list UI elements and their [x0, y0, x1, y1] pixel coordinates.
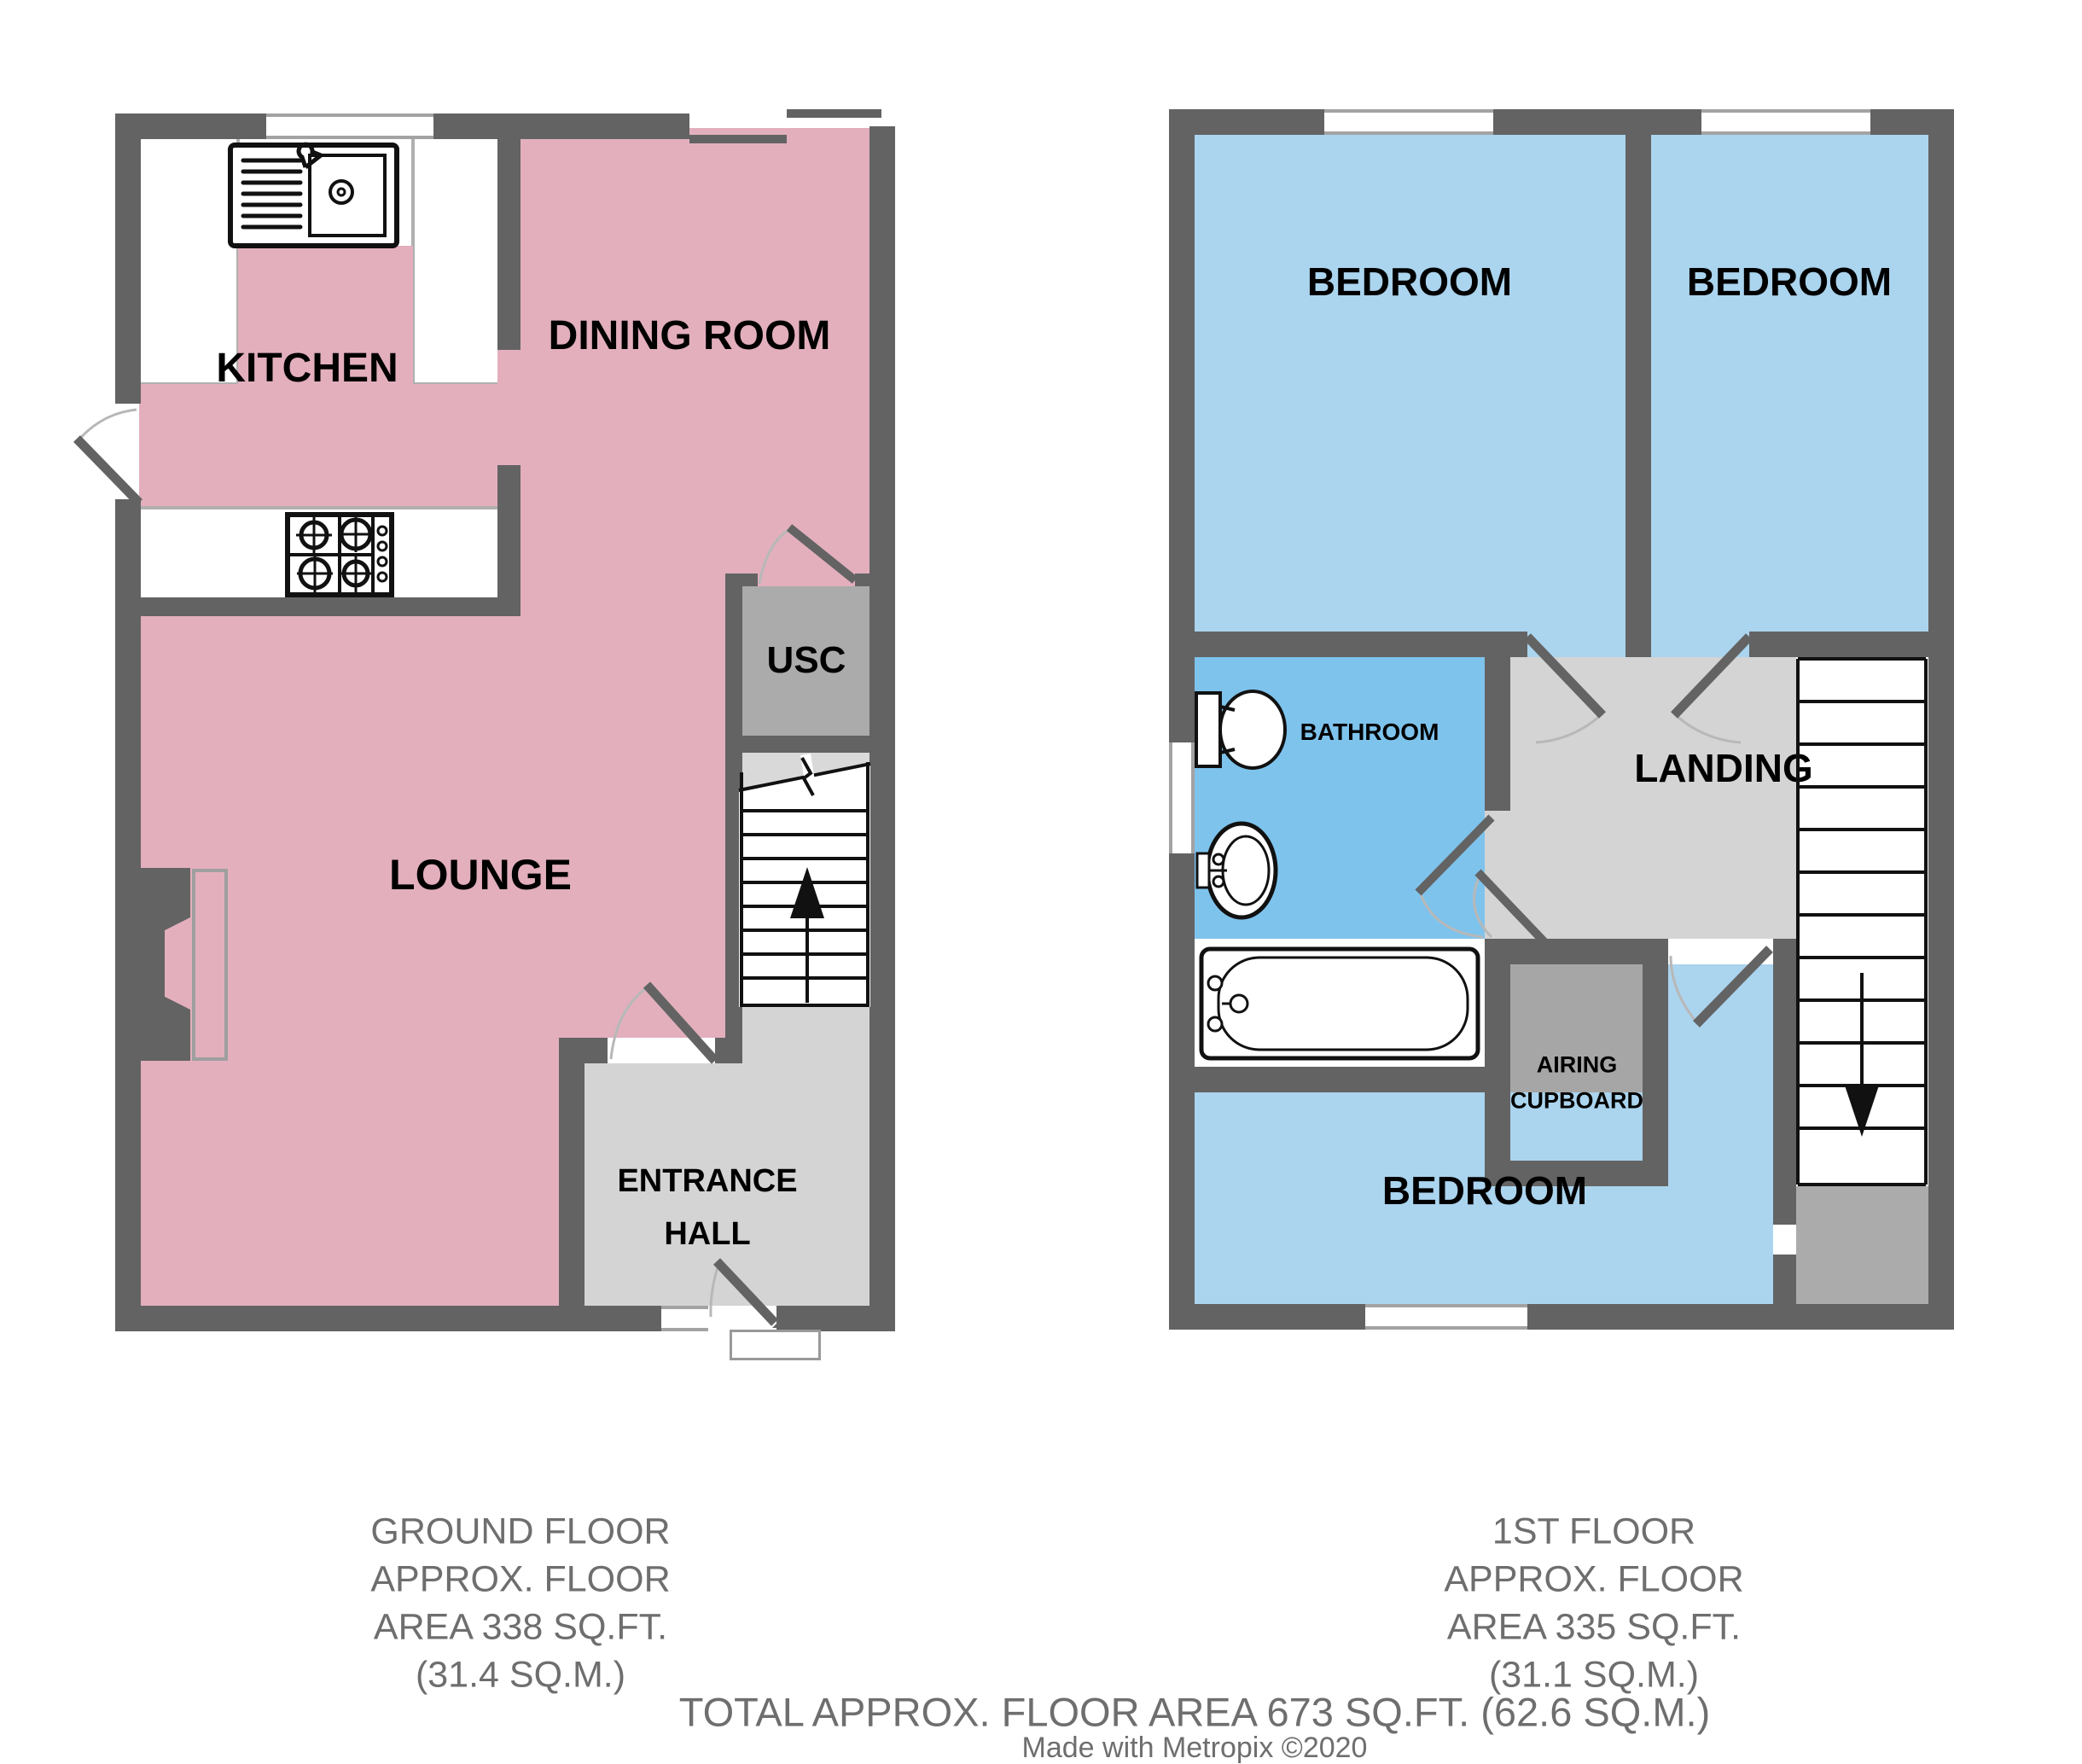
bedroom-left-window	[1324, 109, 1493, 135]
caption-line: 1ST FLOOR	[1492, 1514, 1695, 1551]
airing-cupboard-label-line2: CUPBOARD	[1510, 1090, 1643, 1113]
front-doorstep	[730, 1330, 821, 1360]
kitchen-window	[266, 114, 433, 139]
entrance-hall-label-line1: ENTRANCE	[617, 1165, 797, 1197]
wall	[115, 1306, 559, 1331]
entrance-hall-label-line2: HALL	[664, 1218, 750, 1250]
bedroom-right-window	[1701, 109, 1870, 135]
kitchen-counter-bottom	[139, 509, 497, 597]
wall	[855, 573, 869, 586]
wall	[1773, 939, 1796, 1225]
wall	[1643, 964, 1668, 1161]
caption-line: GROUND FLOOR	[370, 1514, 670, 1551]
caption-line: (31.4 SQ.M.)	[416, 1657, 625, 1694]
lounge-label: LOUNGE	[389, 853, 572, 896]
wall	[1527, 1304, 1954, 1330]
wall	[433, 114, 689, 139]
ground-floor-plan: KITCHEN DINING ROOM LOUNGE USC ENTRANCE …	[0, 0, 939, 1383]
patio-door-inner-line	[689, 135, 787, 143]
wall	[1485, 939, 1510, 1186]
usc-label: USC	[767, 642, 846, 679]
fireplace-opening	[165, 917, 190, 1010]
bedroom-left-label: BEDROOM	[1307, 262, 1512, 301]
hearth	[192, 869, 228, 1061]
wall	[1169, 1067, 1510, 1092]
wall	[725, 736, 869, 753]
bedroom-right-label: BEDROOM	[1687, 262, 1892, 301]
wall	[497, 139, 520, 350]
wall	[776, 1306, 869, 1331]
lounge-floor	[139, 1038, 559, 1306]
under-stairs-cupboard	[1796, 1186, 1928, 1304]
landing-floor	[1485, 811, 1510, 939]
wall	[1485, 632, 1510, 811]
wall	[497, 465, 520, 616]
caption-line: APPROX. FLOOR	[1444, 1562, 1743, 1598]
floorplan-canvas: KITCHEN DINING ROOM LOUNGE USC ENTRANCE …	[0, 0, 2082, 1764]
wall	[1493, 109, 1701, 135]
stairs-floor	[1796, 657, 1928, 1186]
wall	[559, 1306, 661, 1331]
caption-line: AREA 338 SQ.FT.	[374, 1610, 667, 1646]
wall	[1195, 632, 1527, 657]
patio-door-outer-line	[787, 109, 881, 118]
wall	[1625, 135, 1651, 657]
airing-cupboard-label-line1: AIRING	[1537, 1054, 1618, 1077]
wall	[559, 1038, 584, 1331]
metropix-credit: Made with Metropix ©2020	[1022, 1733, 1368, 1762]
caption-line: APPROX. FLOOR	[370, 1562, 670, 1598]
bathroom-label: BATHROOM	[1300, 720, 1439, 744]
wall	[869, 126, 895, 1331]
wall	[1169, 109, 1195, 742]
wall	[725, 573, 742, 753]
dining-floor	[689, 128, 869, 616]
wall	[115, 114, 141, 404]
wall	[1749, 632, 1928, 657]
wall	[715, 1038, 742, 1063]
caption-line: AREA 335 SQ.FT.	[1447, 1610, 1741, 1646]
hall-under-stairs	[742, 1007, 869, 1063]
dining-room-label: DINING ROOM	[549, 316, 831, 357]
wall	[725, 753, 742, 1063]
dining-floor	[520, 139, 689, 616]
kitchen-dining-opening	[497, 350, 520, 465]
total-area-caption: TOTAL APPROX. FLOOR AREA 673 SQ.FT. (62.…	[679, 1692, 1710, 1732]
caption-line: (31.1 SQ.M.)	[1489, 1657, 1699, 1694]
wall	[1169, 1304, 1365, 1330]
wall	[1773, 1255, 1796, 1304]
bedroom-main-floor	[1668, 964, 1773, 1092]
front-sidelight-window	[661, 1306, 708, 1331]
landing-label: LANDING	[1634, 748, 1813, 788]
bedroom-right-floor	[1651, 135, 1928, 657]
wall	[1928, 109, 1954, 1330]
bedroom-main-label: BEDROOM	[1382, 1171, 1587, 1210]
bathroom-floor	[1195, 657, 1485, 939]
bath-area	[1195, 939, 1485, 1067]
kitchen-label: KITCHEN	[216, 348, 398, 389]
first-floor-plan: BEDROOM BEDROOM BATHROOM LANDING AIRING …	[1109, 0, 2082, 1383]
wall	[1510, 939, 1668, 964]
wall	[115, 597, 497, 616]
wall	[115, 499, 141, 1331]
bathroom-window	[1169, 742, 1195, 853]
bedroom-left-floor	[1195, 135, 1625, 657]
kitchen-floor	[139, 384, 497, 509]
stairs-top-landing	[742, 753, 869, 795]
bedroom-main-window	[1365, 1304, 1527, 1330]
